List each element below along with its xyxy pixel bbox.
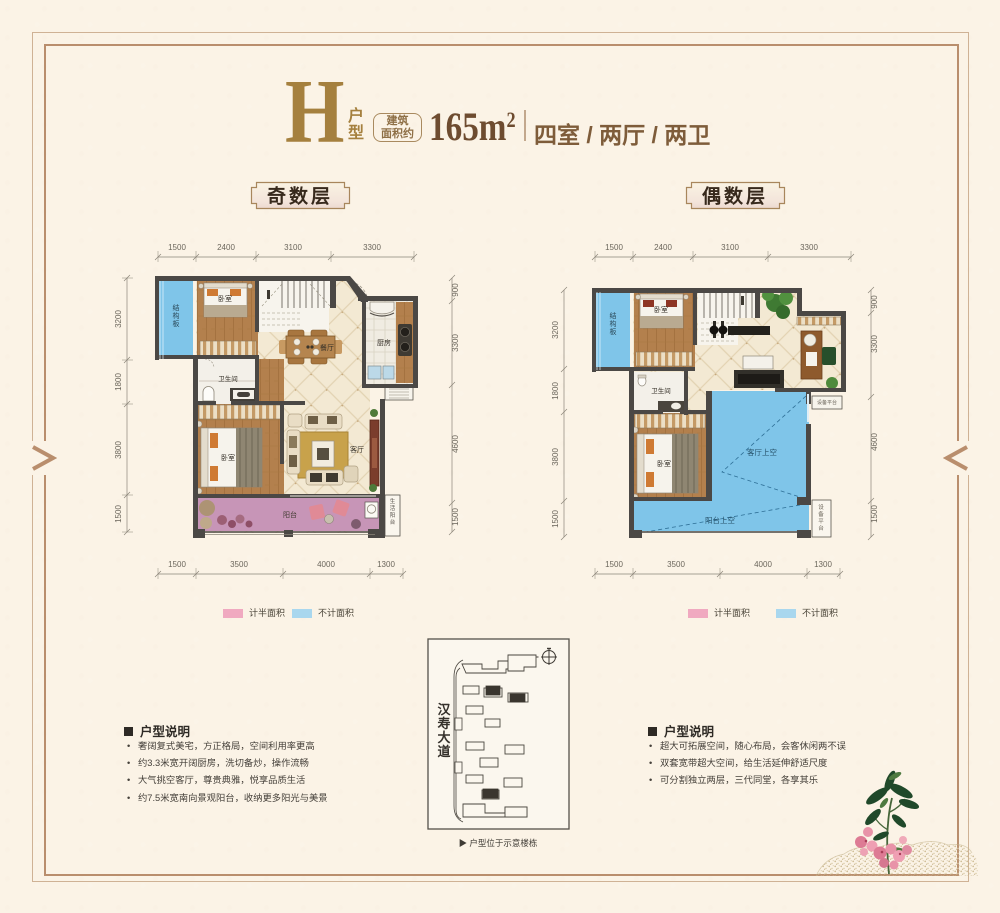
- svg-text:1800: 1800: [114, 373, 123, 391]
- svg-text:卧室: 卧室: [654, 305, 668, 314]
- svg-text:偶数层: 偶数层: [702, 185, 768, 208]
- svg-text:2400: 2400: [217, 243, 235, 252]
- svg-text:1500: 1500: [605, 243, 623, 252]
- svg-text:900: 900: [451, 283, 460, 297]
- svg-text:4000: 4000: [754, 560, 772, 569]
- svg-text:餐厅: 餐厅: [320, 343, 334, 352]
- svg-text:3200: 3200: [551, 321, 560, 339]
- svg-text:4600: 4600: [451, 435, 460, 453]
- svg-text:1500: 1500: [551, 510, 560, 528]
- svg-text:4000: 4000: [317, 560, 335, 569]
- svg-text:卫生间: 卫生间: [218, 374, 238, 383]
- svg-text:汉寿大道: 汉寿大道: [437, 702, 451, 759]
- svg-text:1500: 1500: [168, 243, 186, 252]
- svg-text:客厅上空: 客厅上空: [747, 447, 777, 457]
- svg-text:卫生间: 卫生间: [651, 386, 671, 395]
- svg-text:1300: 1300: [377, 560, 395, 569]
- svg-text:3500: 3500: [230, 560, 248, 569]
- svg-text:厨房: 厨房: [377, 338, 391, 347]
- svg-text:设备平台: 设备平台: [817, 399, 837, 406]
- svg-text:1500: 1500: [168, 560, 186, 569]
- svg-text:结构板: 结构板: [610, 311, 617, 336]
- svg-text:卧室: 卧室: [218, 294, 232, 303]
- svg-text:1500: 1500: [605, 560, 623, 569]
- svg-text:3500: 3500: [667, 560, 685, 569]
- svg-text:设备平台: 设备平台: [818, 503, 824, 532]
- svg-text:阳台: 阳台: [283, 510, 297, 519]
- svg-text:3300: 3300: [800, 243, 818, 252]
- svg-text:3100: 3100: [284, 243, 302, 252]
- svg-text:1500: 1500: [870, 505, 879, 523]
- svg-text:2400: 2400: [654, 243, 672, 252]
- svg-text:3300: 3300: [870, 335, 879, 353]
- svg-text:1500: 1500: [451, 508, 460, 526]
- svg-text:3100: 3100: [721, 243, 739, 252]
- svg-text:3300: 3300: [363, 243, 381, 252]
- svg-text:▶ 户型位于示意楼栋: ▶ 户型位于示意楼栋: [459, 838, 538, 848]
- svg-text:3800: 3800: [551, 448, 560, 466]
- svg-text:3200: 3200: [114, 310, 123, 328]
- svg-text:生活阳台: 生活阳台: [390, 497, 396, 526]
- svg-text:3800: 3800: [114, 441, 123, 459]
- svg-text:1800: 1800: [551, 382, 560, 400]
- svg-text:客厅: 客厅: [350, 445, 364, 454]
- svg-text:900: 900: [870, 295, 879, 309]
- svg-text:4600: 4600: [870, 433, 879, 451]
- svg-text:奇数层: 奇数层: [267, 185, 333, 208]
- svg-text:1500: 1500: [114, 505, 123, 523]
- svg-text:3300: 3300: [451, 334, 460, 352]
- svg-text:阳台上空: 阳台上空: [705, 515, 735, 525]
- svg-text:1300: 1300: [814, 560, 832, 569]
- svg-text:卧室: 卧室: [221, 453, 235, 462]
- svg-text:卧室: 卧室: [657, 459, 671, 468]
- svg-text:结构板: 结构板: [173, 303, 180, 328]
